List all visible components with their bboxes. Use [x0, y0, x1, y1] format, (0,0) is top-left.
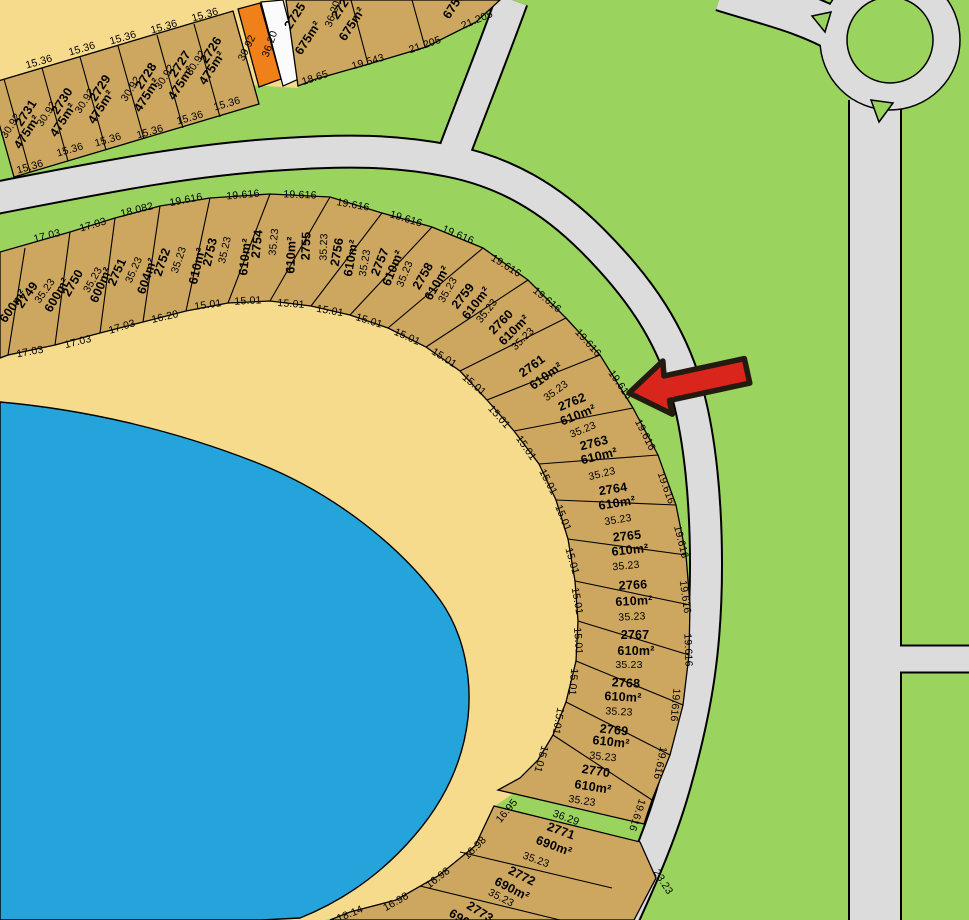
cadastral-map: 15.3615.3615.3615.3615.3615.3615.3615.36…	[0, 0, 969, 920]
arrow-layer	[0, 0, 969, 920]
red-arrow	[625, 349, 752, 419]
